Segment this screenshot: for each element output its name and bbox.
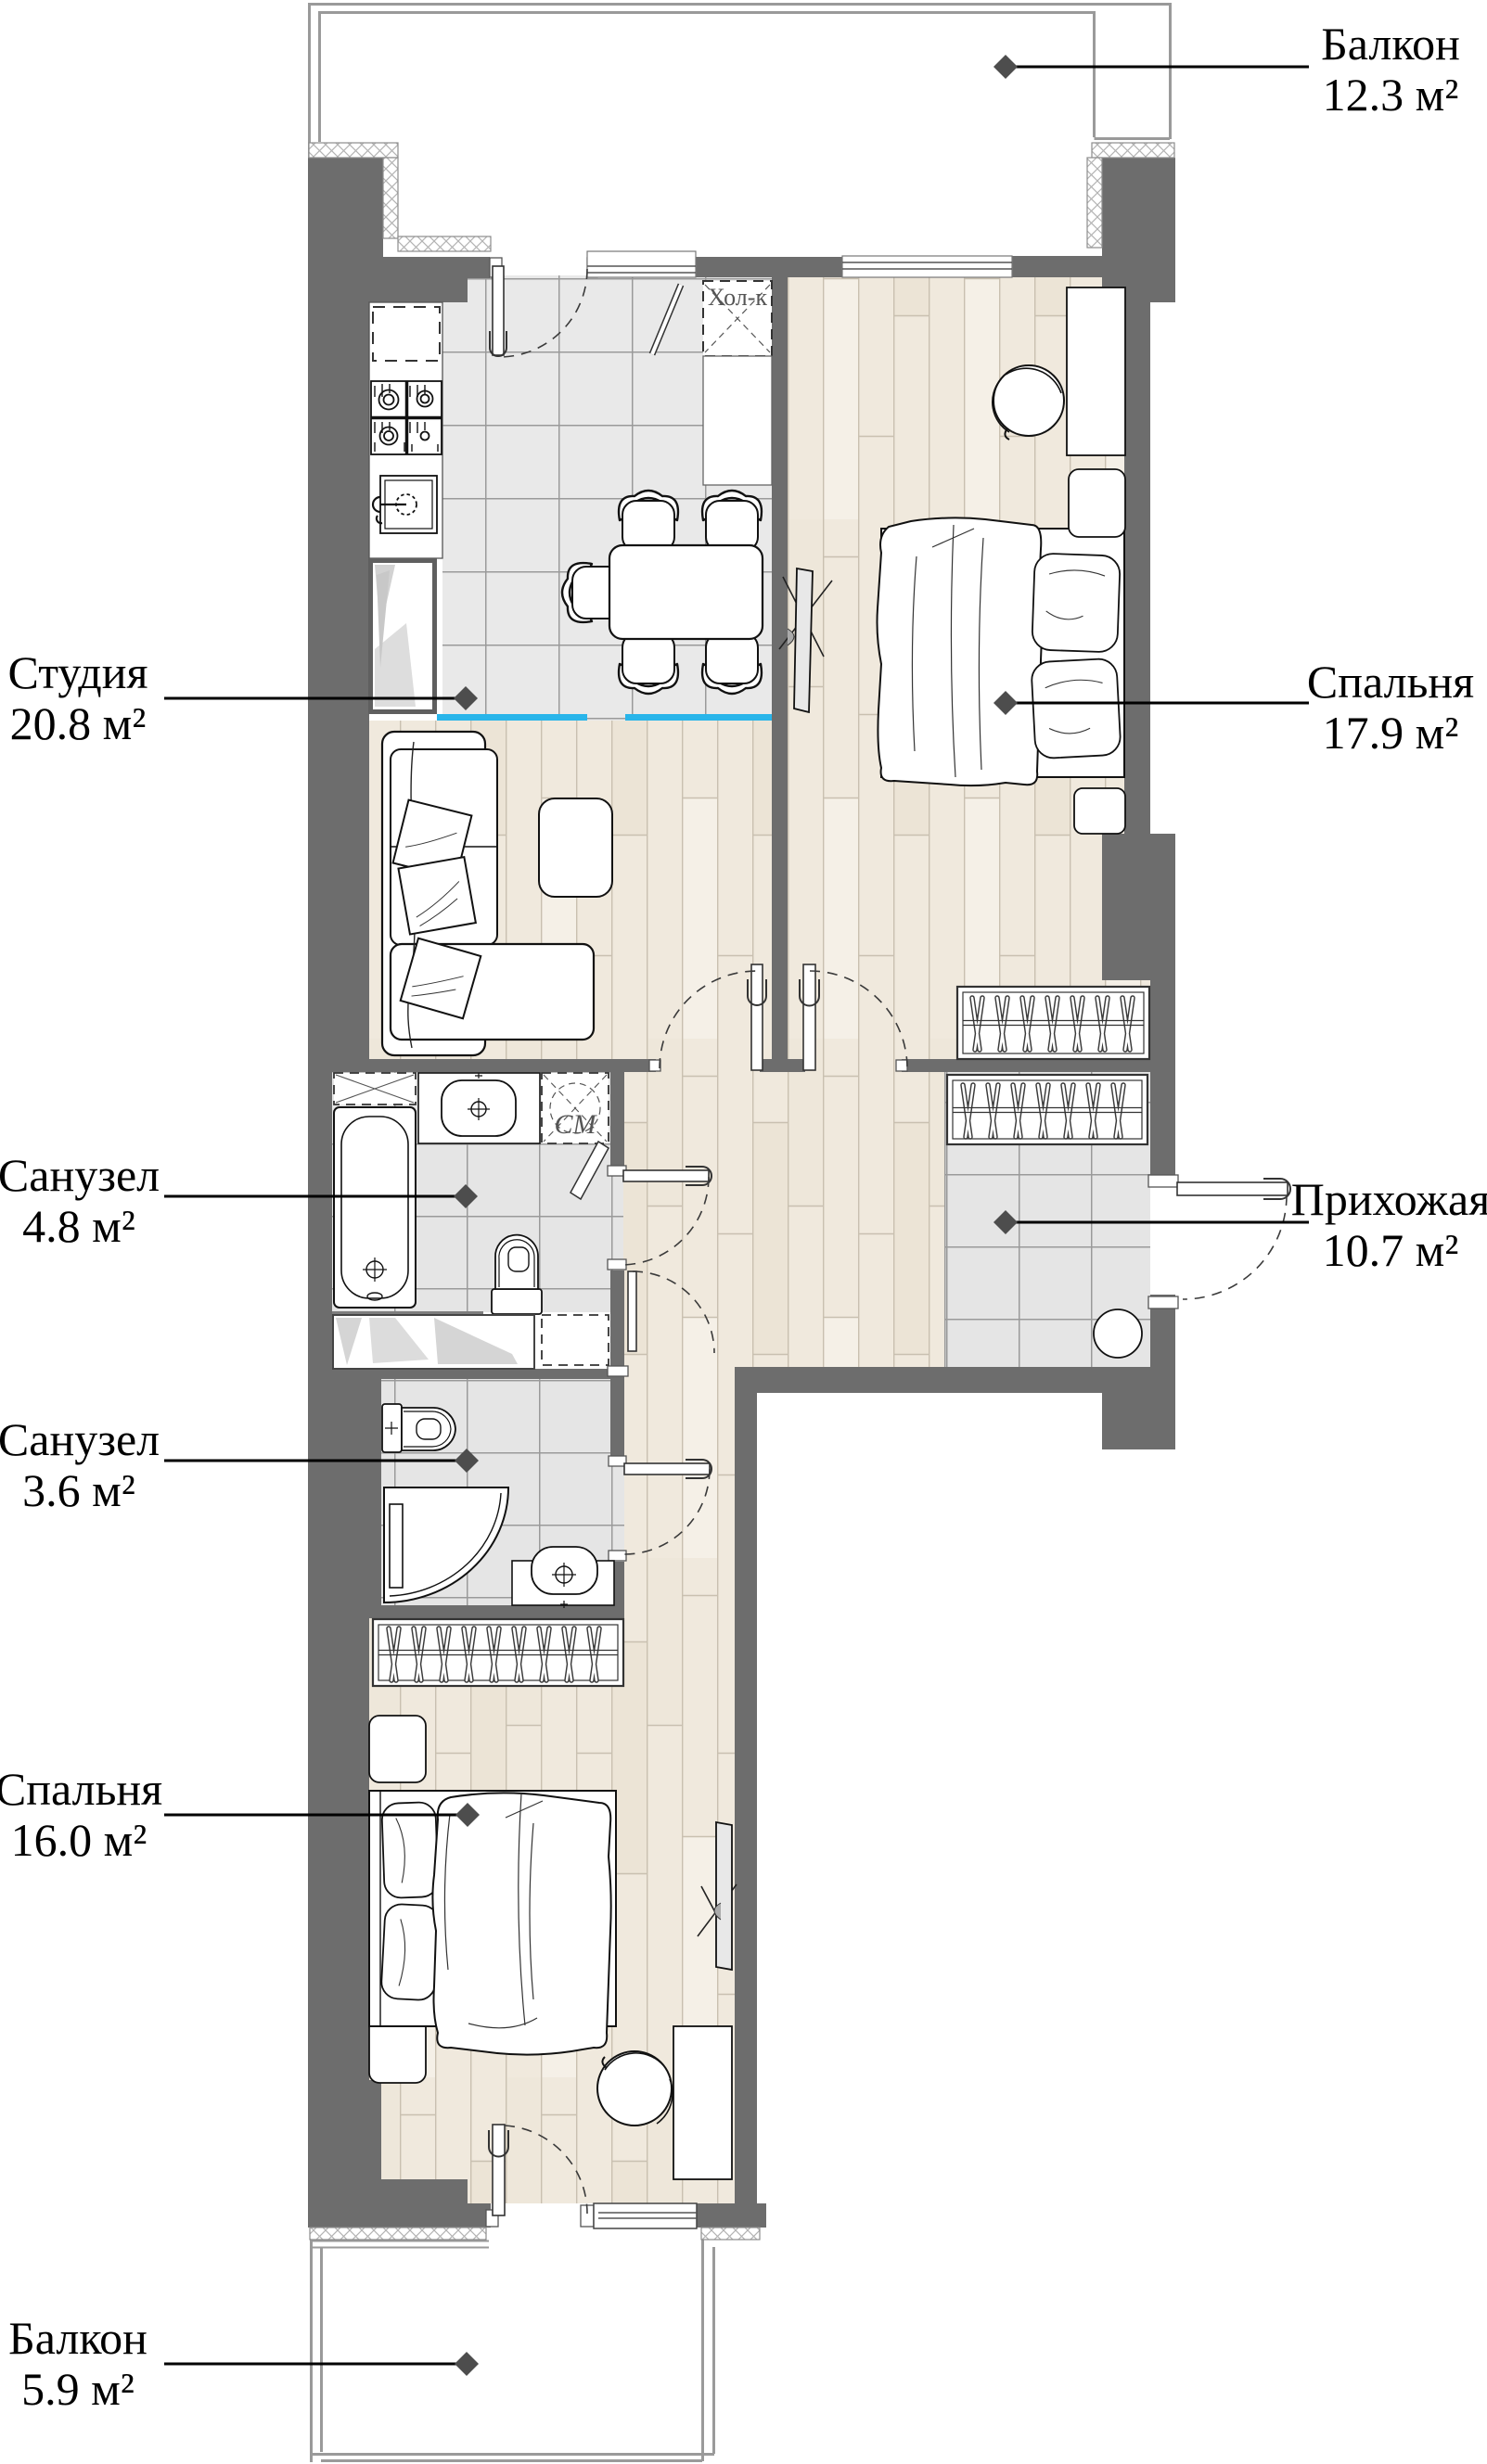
svg-text:Спальня: Спальня <box>0 1763 162 1815</box>
svg-text:Хол-к: Хол-к <box>708 284 767 311</box>
svg-text:СМ: СМ <box>555 1109 598 1140</box>
svg-text:4.8 м²: 4.8 м² <box>22 1200 135 1252</box>
svg-text:20.8 м²: 20.8 м² <box>10 697 147 749</box>
svg-text:Балкон: Балкон <box>8 2312 147 2364</box>
svg-text:Санузел: Санузел <box>0 1413 160 1465</box>
svg-text:16.0 м²: 16.0 м² <box>11 1814 147 1866</box>
svg-text:Санузел: Санузел <box>0 1149 160 1201</box>
svg-text:Спальня: Спальня <box>1307 656 1474 708</box>
svg-text:Балкон: Балкон <box>1321 18 1460 70</box>
svg-text:12.3 м²: 12.3 м² <box>1323 69 1459 121</box>
svg-text:3.6 м²: 3.6 м² <box>22 1464 135 1516</box>
svg-text:Студия: Студия <box>8 646 148 698</box>
svg-text:5.9 м²: 5.9 м² <box>21 2363 135 2415</box>
svg-text:Прихожая: Прихожая <box>1291 1173 1487 1225</box>
svg-text:10.7 м²: 10.7 м² <box>1323 1224 1459 1276</box>
svg-text:17.9 м²: 17.9 м² <box>1323 707 1459 759</box>
